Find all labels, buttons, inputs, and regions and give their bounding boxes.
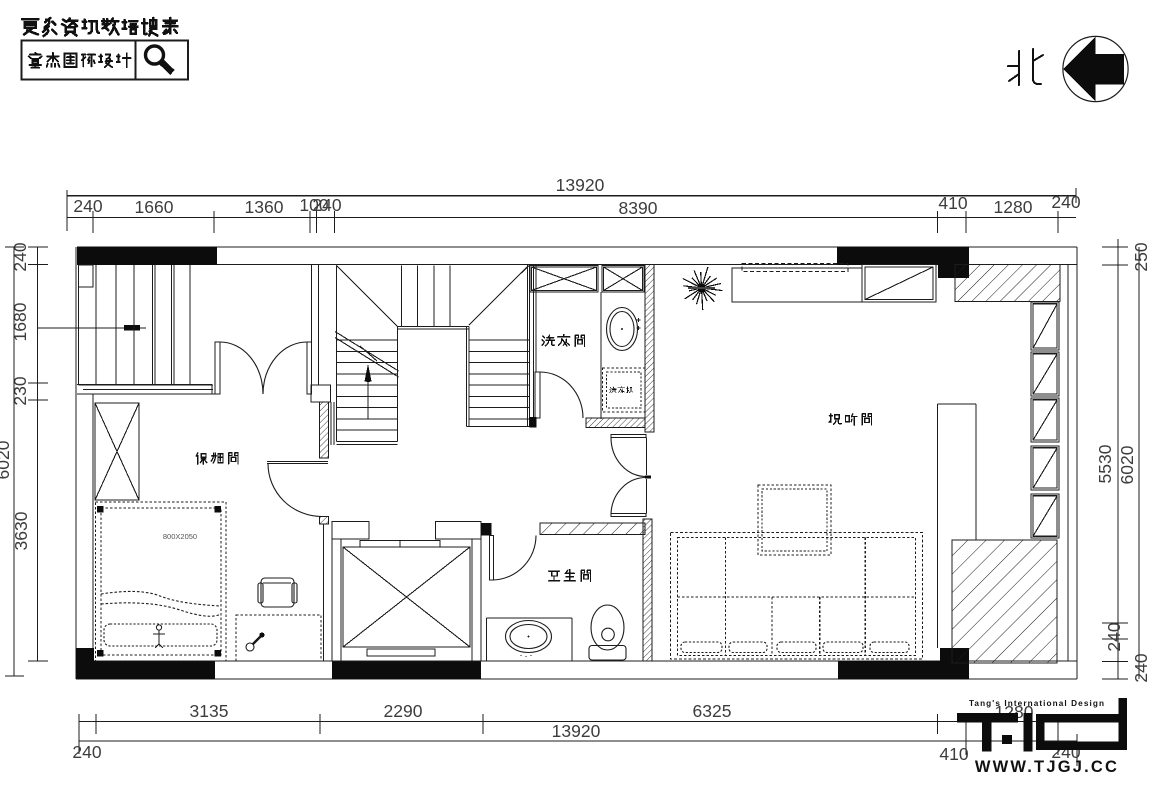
svg-text:6325: 6325 [693, 701, 732, 721]
svg-text:800X2050: 800X2050 [163, 532, 197, 541]
svg-text:240: 240 [312, 195, 341, 215]
svg-text:13920: 13920 [556, 175, 605, 195]
svg-text:410: 410 [938, 193, 967, 213]
svg-text:6020: 6020 [1117, 445, 1137, 484]
svg-text:240: 240 [72, 742, 101, 762]
svg-text:230: 230 [10, 376, 30, 405]
svg-text:5530: 5530 [1095, 444, 1115, 483]
svg-text:250: 250 [1131, 242, 1151, 271]
svg-text:1680: 1680 [10, 302, 30, 341]
svg-text:240: 240 [73, 196, 102, 216]
svg-text:13920: 13920 [552, 721, 601, 741]
svg-text:1660: 1660 [135, 197, 174, 217]
svg-text:6020: 6020 [0, 440, 13, 479]
svg-text:1360: 1360 [245, 197, 284, 217]
svg-text:240: 240 [1104, 622, 1124, 651]
svg-text:8390: 8390 [619, 198, 658, 218]
svg-text:1280: 1280 [994, 197, 1033, 217]
svg-text:WWW.TJGJ.CC: WWW.TJGJ.CC [975, 758, 1119, 776]
svg-text:240: 240 [1051, 192, 1080, 212]
svg-text:240: 240 [1131, 653, 1151, 682]
svg-text:3135: 3135 [190, 701, 229, 721]
svg-text:Tang's International Design: Tang's International Design [969, 699, 1105, 708]
svg-text:2290: 2290 [384, 701, 423, 721]
svg-text:410: 410 [939, 744, 968, 764]
